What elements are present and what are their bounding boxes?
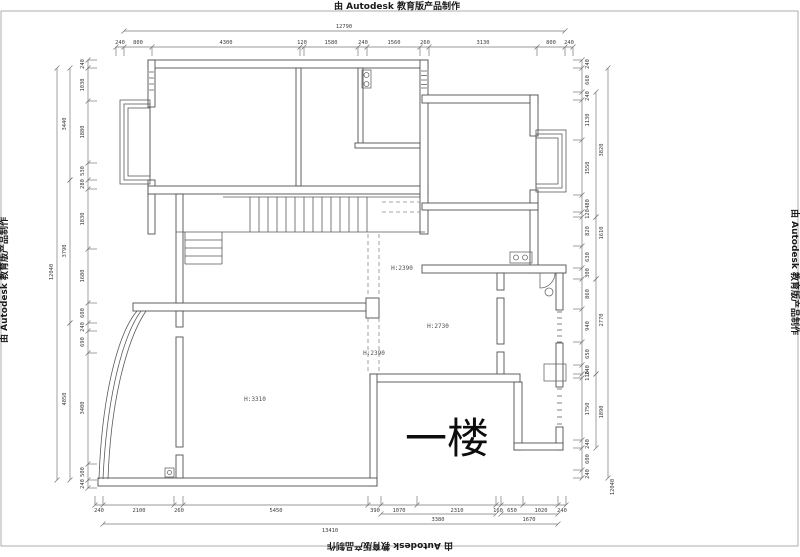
svg-text:110: 110 [585, 371, 591, 381]
svg-text:1070: 1070 [393, 508, 406, 514]
svg-text:240: 240 [94, 508, 104, 514]
svg-text:1130: 1130 [585, 114, 591, 127]
svg-text:2310: 2310 [451, 508, 464, 514]
svg-text:3790: 3790 [62, 245, 68, 258]
svg-text:940: 940 [585, 321, 591, 331]
svg-text:12790: 12790 [336, 24, 352, 30]
svg-text:4300: 4300 [220, 40, 233, 46]
svg-text:3820: 3820 [599, 144, 605, 157]
svg-text:12040: 12040 [610, 479, 616, 495]
watermark-left: 由 Autodesk 教育版产品制作 [0, 217, 10, 343]
svg-text:3440: 3440 [62, 118, 68, 131]
svg-text:240: 240 [564, 40, 574, 46]
cad-canvas: H:2390 H:2390 H:2730 H:3310 一楼 240800430… [0, 0, 800, 557]
svg-text:240: 240 [358, 40, 368, 46]
svg-text:13410: 13410 [322, 528, 338, 534]
svg-text:2100: 2100 [133, 508, 146, 514]
page-background [0, 0, 800, 557]
svg-text:690: 690 [80, 337, 86, 347]
svg-text:530: 530 [80, 166, 86, 176]
svg-text:260: 260 [420, 40, 430, 46]
svg-text:2770: 2770 [599, 314, 605, 327]
svg-text:3380: 3380 [432, 517, 445, 523]
svg-text:480: 480 [585, 199, 591, 209]
svg-text:280: 280 [80, 179, 86, 189]
svg-text:120: 120 [585, 209, 591, 219]
svg-text:3400: 3400 [80, 402, 86, 415]
svg-text:1560: 1560 [388, 40, 401, 46]
height-label: H:2390 [363, 350, 385, 357]
height-label: H:3310 [244, 396, 266, 403]
watermark-top: 由 Autodesk 教育版产品制作 [334, 0, 460, 12]
svg-text:860: 860 [585, 289, 591, 299]
svg-text:240: 240 [585, 59, 591, 69]
svg-text:800: 800 [133, 40, 143, 46]
svg-text:240: 240 [80, 59, 86, 69]
height-label: H:2390 [391, 265, 413, 272]
svg-text:1890: 1890 [599, 406, 605, 419]
svg-text:1020: 1020 [535, 508, 548, 514]
svg-text:240: 240 [80, 322, 86, 332]
svg-text:1030: 1030 [80, 79, 86, 92]
svg-text:260: 260 [174, 508, 184, 514]
svg-text:240: 240 [585, 439, 591, 449]
svg-text:240: 240 [80, 479, 86, 489]
svg-text:390: 390 [370, 508, 380, 514]
svg-text:1550: 1550 [585, 162, 591, 175]
svg-text:240: 240 [585, 469, 591, 479]
watermark-bottom: 由 Autodesk 教育版产品制作 [327, 540, 453, 552]
svg-text:1680: 1680 [80, 270, 86, 283]
svg-text:300: 300 [585, 268, 591, 278]
svg-text:5450: 5450 [270, 508, 283, 514]
svg-text:1670: 1670 [523, 517, 536, 523]
cad-sheet: H:2390 H:2390 H:2730 H:3310 一楼 240800430… [0, 0, 800, 557]
svg-text:600: 600 [80, 308, 86, 318]
svg-text:3130: 3130 [477, 40, 490, 46]
svg-text:650: 650 [507, 508, 517, 514]
svg-text:600: 600 [585, 454, 591, 464]
svg-text:660: 660 [585, 75, 591, 85]
svg-text:240: 240 [115, 40, 125, 46]
svg-text:820: 820 [585, 226, 591, 236]
svg-text:240: 240 [585, 91, 591, 101]
svg-text:630: 630 [585, 252, 591, 262]
svg-text:800: 800 [546, 40, 556, 46]
svg-text:500: 500 [80, 467, 86, 477]
height-label: H:2730 [427, 323, 449, 330]
watermark-right: 由 Autodesk 教育版产品制作 [789, 209, 800, 335]
floor-title: 一楼 [405, 414, 489, 463]
svg-text:12040: 12040 [49, 264, 55, 280]
svg-text:650: 650 [585, 349, 591, 359]
svg-text:120: 120 [297, 40, 307, 46]
column-pier [366, 298, 379, 318]
svg-text:1880: 1880 [80, 126, 86, 139]
svg-text:1830: 1830 [80, 213, 86, 226]
svg-text:1580: 1580 [325, 40, 338, 46]
svg-text:1610: 1610 [599, 227, 605, 240]
svg-text:4850: 4850 [62, 393, 68, 406]
svg-text:1750: 1750 [585, 403, 591, 416]
